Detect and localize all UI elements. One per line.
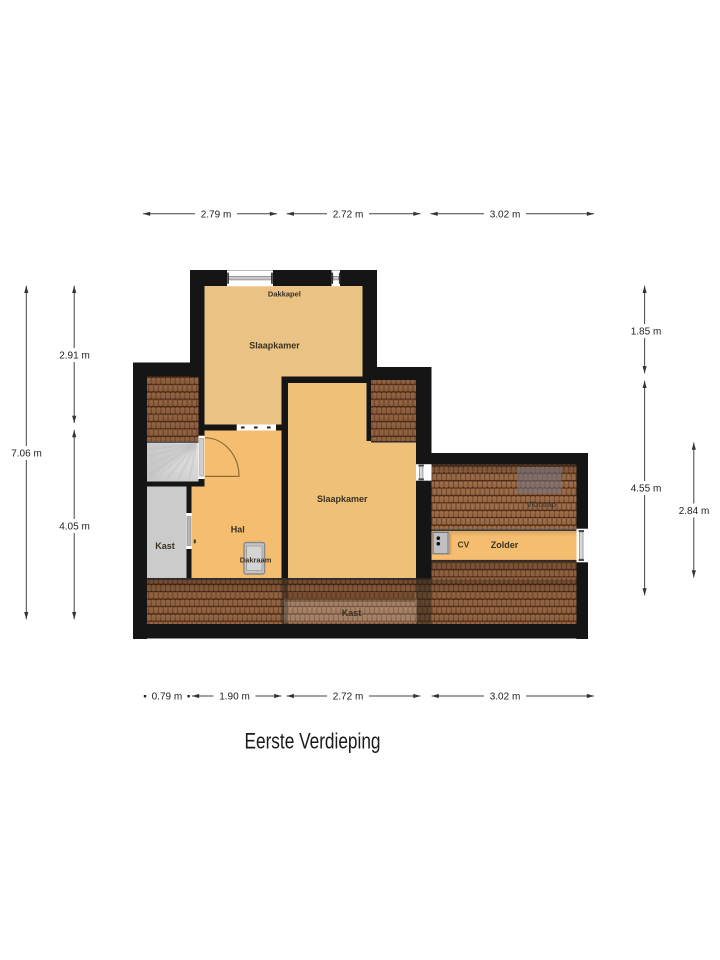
svg-text:1.85 m: 1.85 m — [631, 327, 662, 338]
svg-text:4.55 m: 4.55 m — [631, 484, 662, 495]
svg-text:2.72 m: 2.72 m — [333, 692, 364, 703]
svg-text:2.72 m: 2.72 m — [333, 209, 364, 220]
svg-text:4.05 m: 4.05 m — [59, 522, 90, 533]
svg-text:1.90 m: 1.90 m — [219, 692, 250, 703]
svg-text:CV: CV — [457, 540, 469, 550]
svg-text:Dakkapel: Dakkapel — [268, 289, 301, 298]
svg-text:Zolder: Zolder — [491, 540, 519, 550]
svg-text:Slaapkamer: Slaapkamer — [249, 340, 300, 350]
svg-text:2.91 m: 2.91 m — [59, 351, 90, 362]
svg-text:Vlizotrap: Vlizotrap — [527, 500, 556, 509]
svg-text:Dakraam: Dakraam — [240, 555, 272, 564]
svg-text:3.02 m: 3.02 m — [490, 692, 521, 703]
svg-text:2.84 m: 2.84 m — [679, 506, 710, 517]
svg-text:7.06 m: 7.06 m — [11, 449, 42, 460]
svg-text:Kast: Kast — [342, 608, 362, 618]
svg-text:Hal: Hal — [231, 524, 245, 534]
svg-text:Kast: Kast — [155, 541, 175, 551]
svg-text:0.79 m: 0.79 m — [152, 692, 183, 703]
svg-text:2.79 m: 2.79 m — [201, 209, 232, 220]
svg-text:Slaapkamer: Slaapkamer — [317, 494, 368, 504]
svg-text:3.02 m: 3.02 m — [490, 209, 521, 220]
svg-text:Eerste Verdieping: Eerste Verdieping — [245, 729, 381, 754]
